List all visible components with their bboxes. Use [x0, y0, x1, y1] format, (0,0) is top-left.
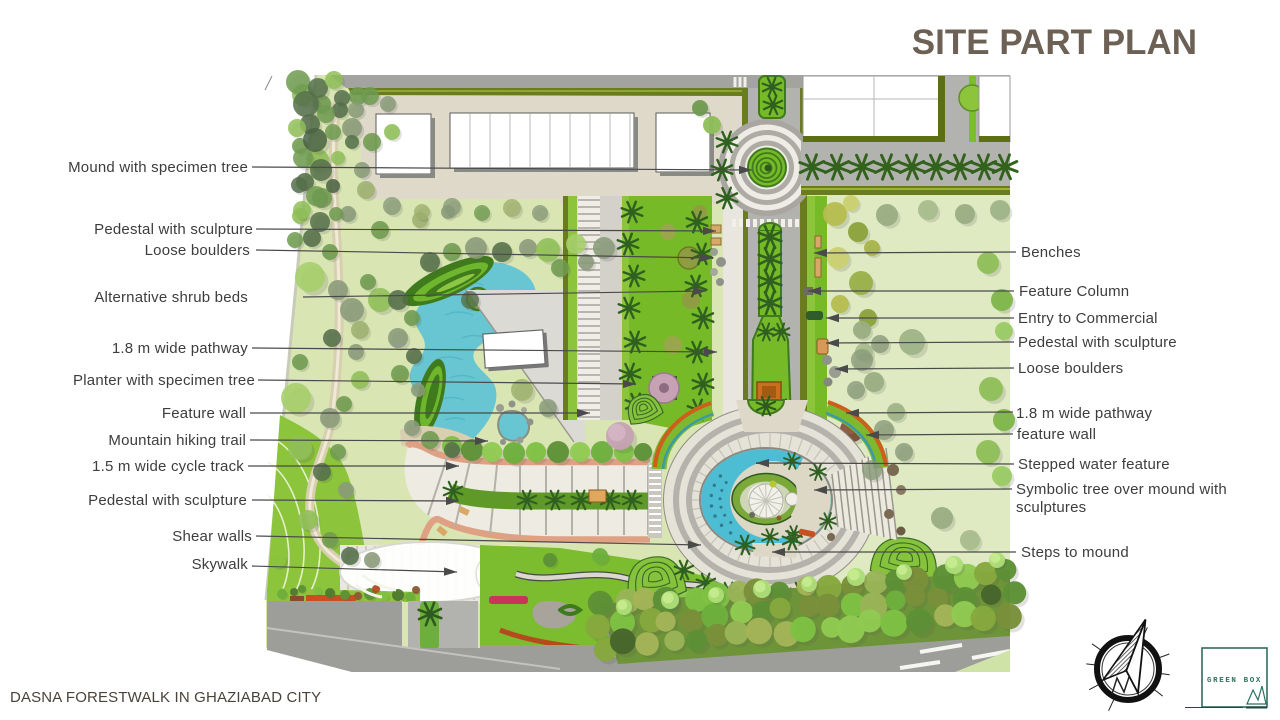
svg-text:Pedestal with sculpture: Pedestal with sculpture	[88, 492, 247, 509]
svg-text:Benches: Benches	[1021, 244, 1081, 261]
svg-text:GREEN BOX: GREEN BOX	[1207, 677, 1262, 685]
svg-text:Pedestal with sculpture: Pedestal with sculpture	[94, 221, 253, 238]
svg-text:SITE PART PLAN: SITE PART PLAN	[912, 23, 1197, 62]
svg-text:1.8 m wide pathway: 1.8 m wide pathway	[1016, 405, 1152, 422]
svg-text:feature wall: feature wall	[1017, 426, 1096, 443]
svg-text:Shear walls: Shear walls	[172, 528, 252, 545]
svg-text:Loose boulders: Loose boulders	[1018, 360, 1123, 377]
svg-text:Steps to mound: Steps to mound	[1021, 544, 1129, 561]
svg-text:Feature Column: Feature Column	[1019, 283, 1129, 300]
svg-text:1.5 m wide cycle track: 1.5 m wide cycle track	[92, 458, 244, 475]
svg-text:Stepped water feature: Stepped water feature	[1018, 456, 1170, 473]
svg-text:Alternative shrub beds: Alternative shrub beds	[94, 289, 248, 306]
svg-text:1.8 m wide pathway: 1.8 m wide pathway	[112, 340, 248, 357]
svg-text:Symbolic tree over mound with: Symbolic tree over mound with	[1016, 481, 1227, 498]
svg-text:Loose boulders: Loose boulders	[145, 242, 250, 259]
svg-text:Entry to Commercial: Entry to Commercial	[1018, 310, 1158, 327]
svg-text:sculptures: sculptures	[1016, 499, 1086, 516]
svg-text:DASNA FORESTWALK IN GHAZIABAD: DASNA FORESTWALK IN GHAZIABAD CITY	[10, 689, 321, 706]
svg-text:Pedestal with sculpture: Pedestal with sculpture	[1018, 334, 1177, 351]
svg-text:Mound with specimen tree: Mound with specimen tree	[68, 159, 248, 176]
svg-text:Planter with specimen tree: Planter with specimen tree	[73, 372, 255, 389]
svg-text:Mountain hiking trail: Mountain hiking trail	[108, 432, 246, 449]
svg-text:Skywalk: Skywalk	[192, 556, 249, 573]
svg-text:Feature wall: Feature wall	[162, 405, 246, 422]
